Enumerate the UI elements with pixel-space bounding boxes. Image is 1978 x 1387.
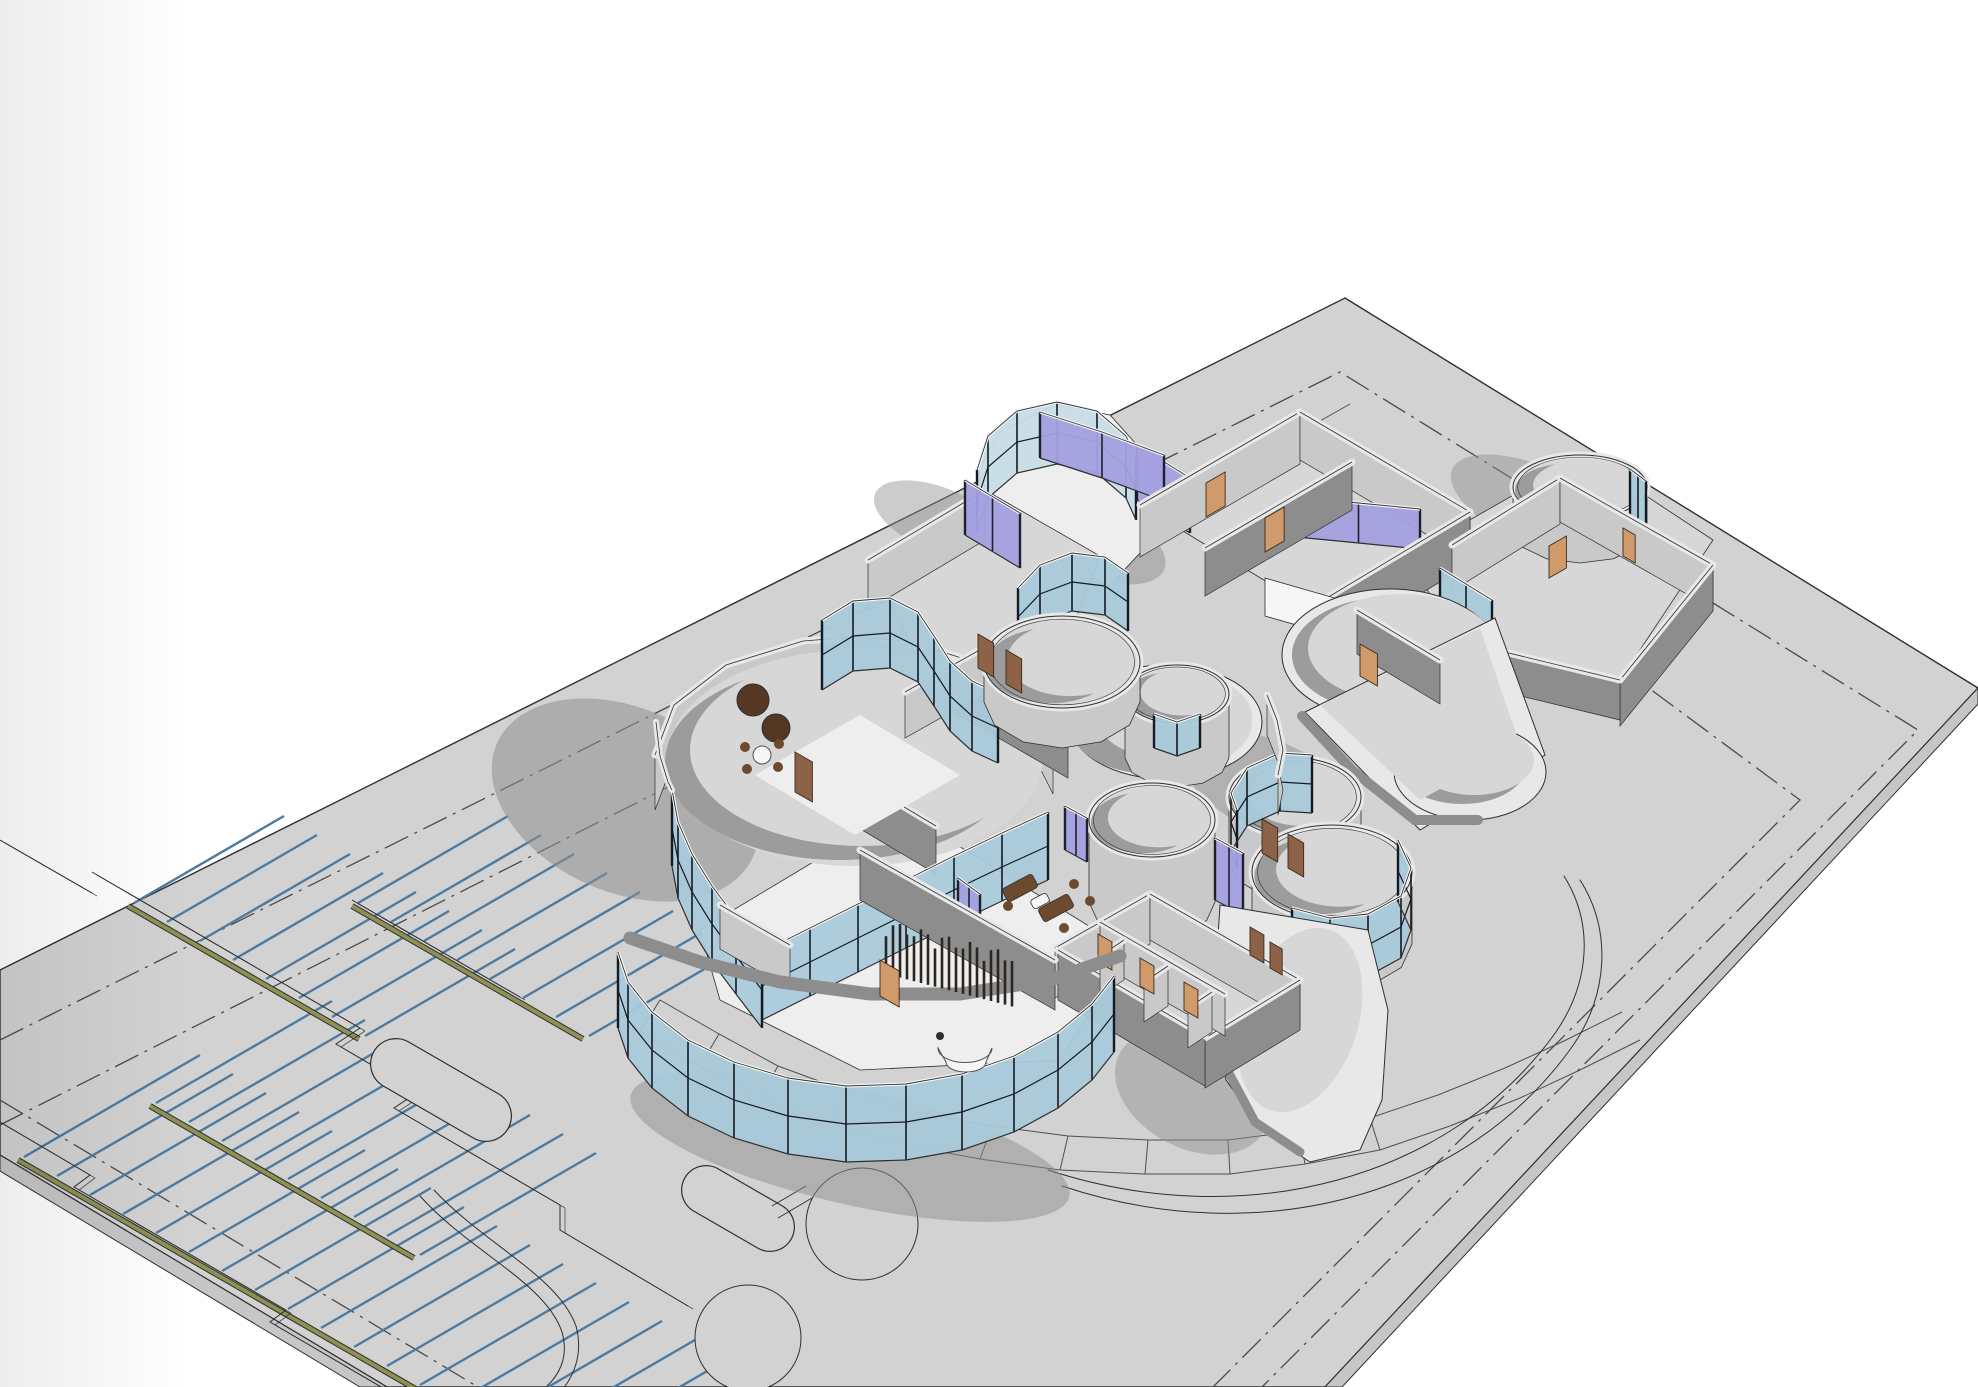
3d-model-view[interactable] [0, 0, 1978, 1387]
chair [774, 739, 784, 749]
landscape-island [706, 1190, 770, 1227]
chair [1085, 896, 1095, 906]
chair [740, 742, 750, 752]
desk-chair [936, 1032, 944, 1040]
table [762, 714, 790, 742]
chair [773, 762, 783, 772]
landscape-island [695, 1285, 801, 1387]
chair [1059, 923, 1069, 933]
chair [1003, 901, 1013, 911]
table [753, 746, 771, 764]
chair [742, 764, 752, 774]
table [737, 684, 769, 716]
3d-view-canvas[interactable] [0, 0, 1978, 1387]
chair [1069, 879, 1079, 889]
